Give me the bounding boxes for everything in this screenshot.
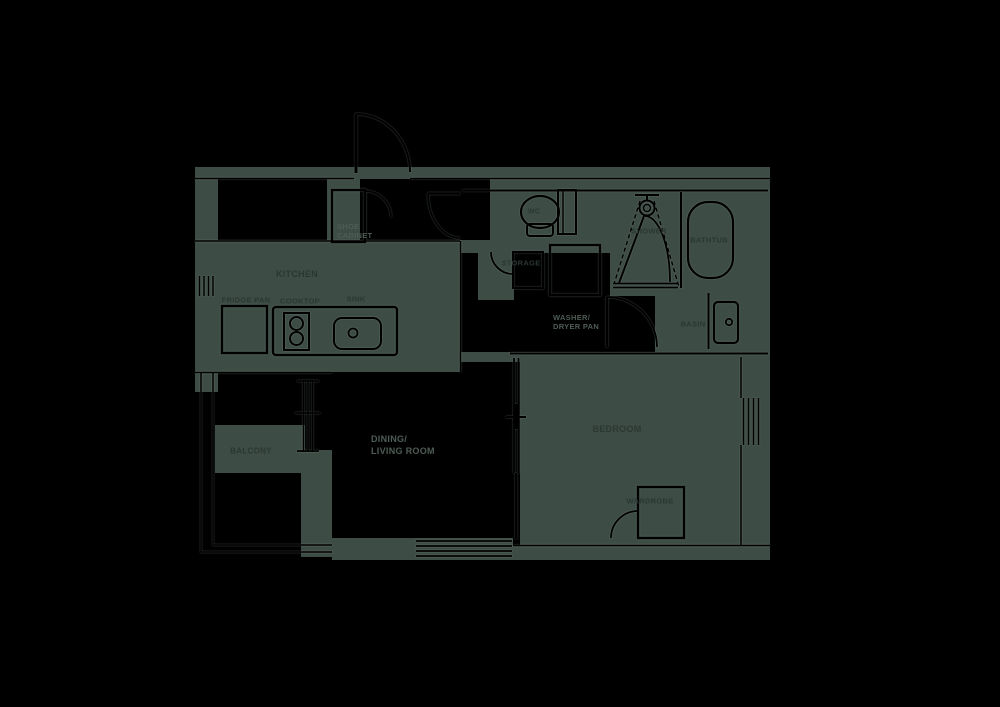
shower-base (613, 284, 678, 288)
washer-dryer-pan (550, 245, 600, 295)
bathtub-label: BATHTUB (690, 236, 728, 245)
hall-door-arc (428, 194, 460, 239)
dining-living-label: DINING/LIVING ROOM (371, 409, 435, 481)
storage-box (513, 252, 543, 288)
floorplan: KITCHEN FRIDGE PAN COOKTOP SINK SHOECABI… (0, 0, 1000, 707)
burner (290, 317, 303, 330)
basin-drain (726, 319, 732, 325)
shoe-cabinet-label: SHOECABINET (337, 204, 372, 258)
threshold-hatch (416, 541, 512, 556)
shower-head (640, 201, 655, 216)
floorplan-linework (0, 0, 1000, 707)
wc-label: WC (528, 208, 540, 217)
entrance-door-arc (356, 114, 410, 172)
fridge-pan-label: FRIDGE PAN (222, 296, 271, 305)
kitchen-label: KITCHEN (276, 268, 318, 280)
wardrobe (638, 487, 684, 538)
basin-label: BASIN (681, 320, 706, 329)
sink-drain (349, 329, 358, 338)
fridge-pan (222, 306, 267, 353)
wardrobe-door-arc (611, 511, 638, 538)
burner (290, 332, 303, 345)
washer-dryer-label: WASHER/DRYER PAN (553, 295, 599, 349)
bath-door-arc (607, 297, 657, 347)
toilet-tank (558, 190, 576, 234)
shower-label: SHOWER (631, 227, 667, 236)
balcony-label: BALCONY (230, 447, 272, 456)
balcony-window (304, 380, 313, 452)
bedroom-label: BEDROOM (592, 423, 641, 435)
balcony-rail-inner (213, 373, 332, 545)
sink-label: SINK (346, 295, 365, 304)
wardrobe-label: WARDROBE (627, 497, 674, 506)
kitchen-window (200, 276, 214, 296)
storage-label: STORAGE (501, 259, 540, 268)
cooktop-label: COOKTOP (280, 297, 320, 306)
bedroom-window (744, 398, 759, 445)
